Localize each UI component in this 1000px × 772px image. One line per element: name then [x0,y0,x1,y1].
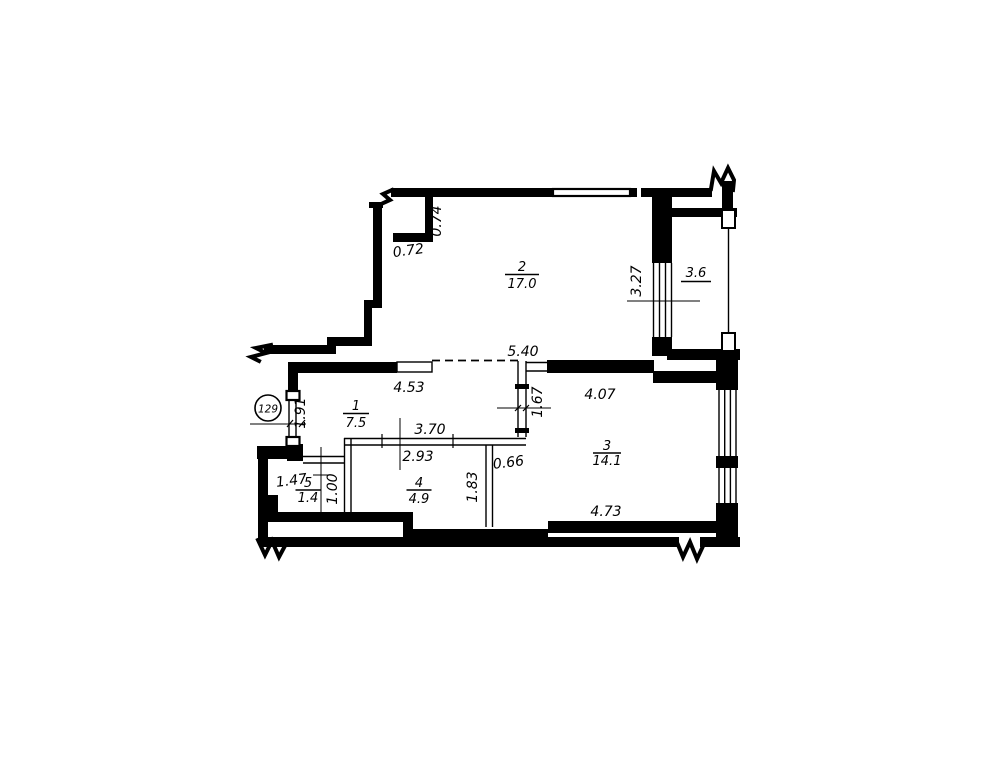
dimension-label-4.53: 4.53 [393,380,424,396]
floor-plan-svg: 0.740.723.275.404.531.911.674.073.702.93… [0,0,1000,772]
dimension-label-1.00: 1.00 [325,473,341,504]
room-number-room-5: 5 [304,476,312,491]
room-area-room-4: 4.9 [409,492,430,507]
dimension-label-0.74: 0.74 [429,205,445,236]
top-wall-window [553,189,630,196]
room-area-room-1: 7.5 [346,416,367,431]
room-number-room-2: 2 [518,260,526,275]
room-area-balcony: 3.6 [686,266,707,281]
shaft-tick-lower [515,428,529,433]
room-number-room-3: 3 [603,439,611,454]
room-area-room-5: 1.4 [298,491,319,506]
apartment-badge: 129 [255,395,281,421]
dimension-label-3.70: 3.70 [414,422,445,438]
paper-background [0,0,1000,772]
room-area-room-2: 17.0 [508,277,537,292]
room-number-room-4: 4 [415,476,423,491]
dimension-label-4.73: 4.73 [590,504,621,520]
balcony-post-top [722,210,735,228]
dimension-label-1.67: 1.67 [530,386,546,417]
dimension-label-1.83: 1.83 [465,471,481,502]
room1-opening-sill [397,362,432,372]
dimension-label-1.91: 1.91 [293,397,309,428]
room-area-room-3: 14.1 [593,454,622,469]
apartment-number: 129 [258,404,278,416]
dimension-label-5.40: 5.40 [507,344,538,360]
dimension-label-3.27: 3.27 [629,265,645,296]
balcony-post-bottom [722,333,735,351]
dimension-label-4.07: 4.07 [584,387,615,403]
dimension-label-2.93: 2.93 [402,449,433,465]
shaft-tick-upper [515,384,529,389]
top-wall-joint [637,187,641,198]
room-number-room-1: 1 [352,399,360,414]
floor-plan-page: 0.740.723.275.404.531.911.674.073.702.93… [0,0,1000,772]
